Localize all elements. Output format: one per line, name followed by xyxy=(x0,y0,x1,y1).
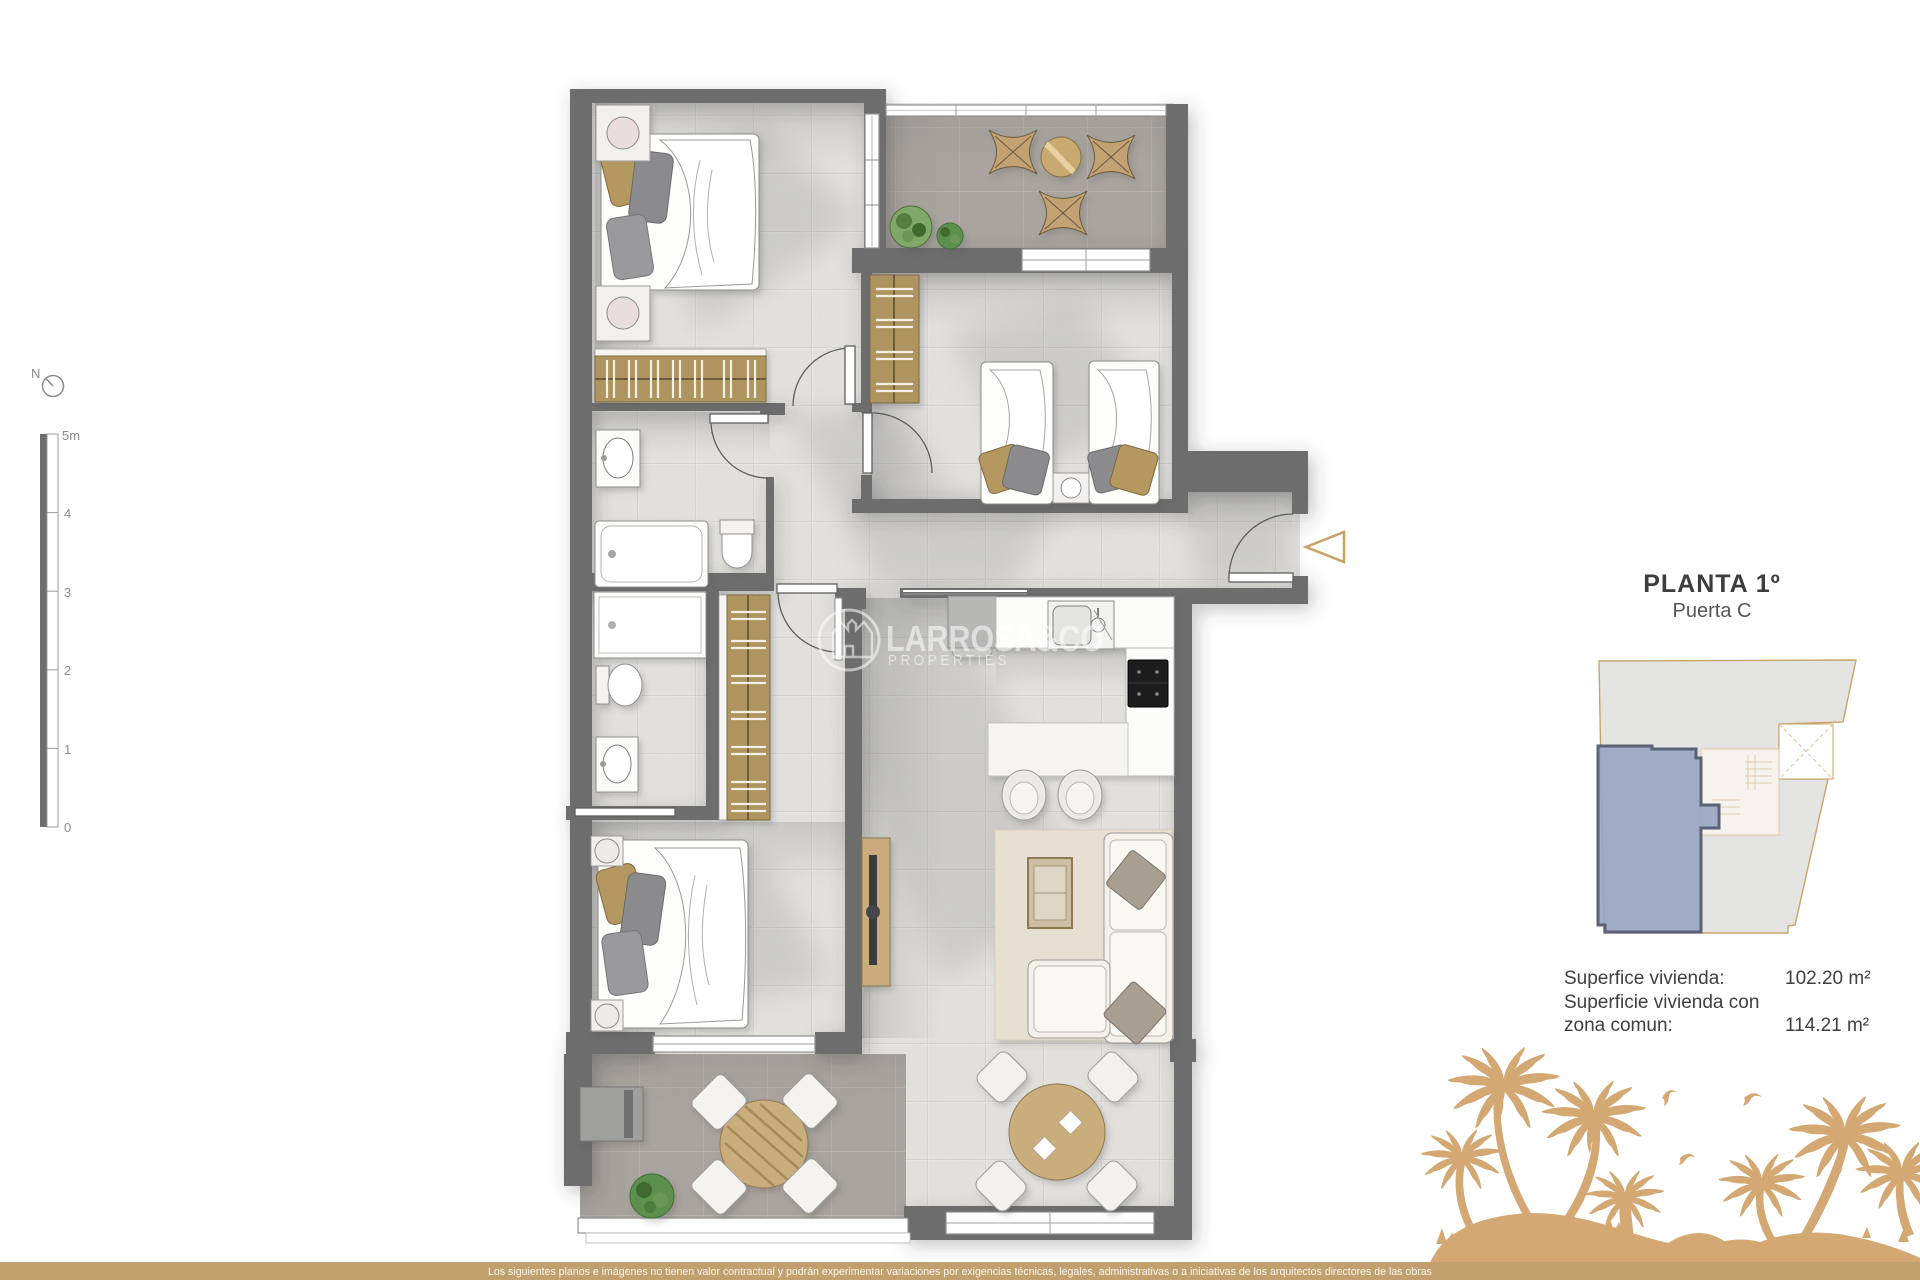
svg-text:5m: 5m xyxy=(62,428,80,443)
svg-text:Los siguientes planos e imágen: Los siguientes planos e imágenes no tien… xyxy=(488,1266,1432,1278)
svg-text:PLANTA 1º: PLANTA 1º xyxy=(1643,570,1781,598)
svg-text:102.20 m²: 102.20 m² xyxy=(1785,968,1871,989)
svg-text:2: 2 xyxy=(64,663,71,678)
svg-text:N: N xyxy=(31,366,40,381)
svg-text:PROPERTIES: PROPERTIES xyxy=(888,652,1010,669)
svg-text:4: 4 xyxy=(64,506,71,521)
svg-text:Superficie vivienda con: Superficie vivienda con xyxy=(1564,992,1759,1013)
svg-text:114.21 m²: 114.21 m² xyxy=(1785,1015,1869,1036)
svg-text:3: 3 xyxy=(64,585,71,600)
svg-text:zona comun:: zona comun: xyxy=(1564,1015,1673,1036)
svg-text:0: 0 xyxy=(64,820,71,835)
svg-text:Puerta C: Puerta C xyxy=(1673,600,1752,622)
svg-text:1: 1 xyxy=(64,742,71,757)
svg-text:Superfice vivienda:: Superfice vivienda: xyxy=(1564,968,1725,989)
